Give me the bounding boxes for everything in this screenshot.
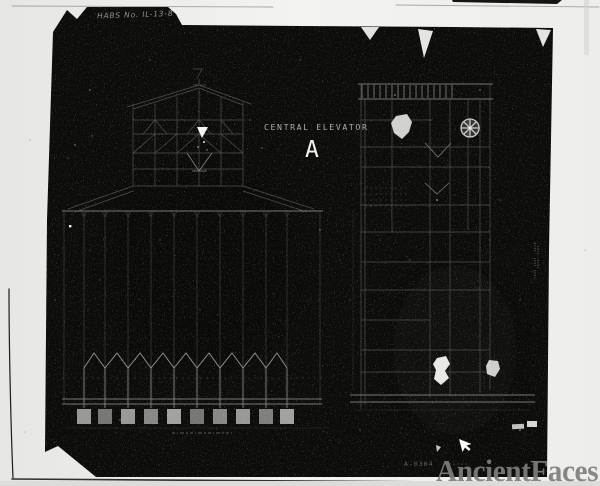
drawing-designation-letter: A (305, 137, 319, 163)
plate-number-label: A-0304 (404, 460, 433, 468)
scanned-photo-page: CENTRAL ELEVATOR A HABS No. IL-13-8 A-03… (0, 0, 600, 486)
scan-canvas: CENTRAL ELEVATOR A HABS No. IL-13-8 A-03… (0, 0, 600, 486)
drawing-title: CENTRAL ELEVATOR (264, 122, 368, 132)
ancientfaces-watermark: AncientFaces (436, 453, 598, 486)
film-grain (40, 5, 560, 481)
